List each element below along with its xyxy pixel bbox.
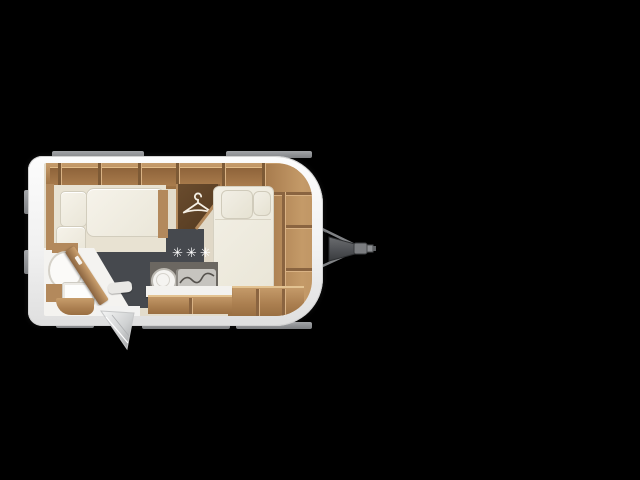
star-rating: ✳✳✳ bbox=[168, 245, 218, 263]
caravan-floorplan-canvas: ✳✳✳ bbox=[0, 0, 640, 480]
door-open-icon bbox=[0, 0, 640, 480]
